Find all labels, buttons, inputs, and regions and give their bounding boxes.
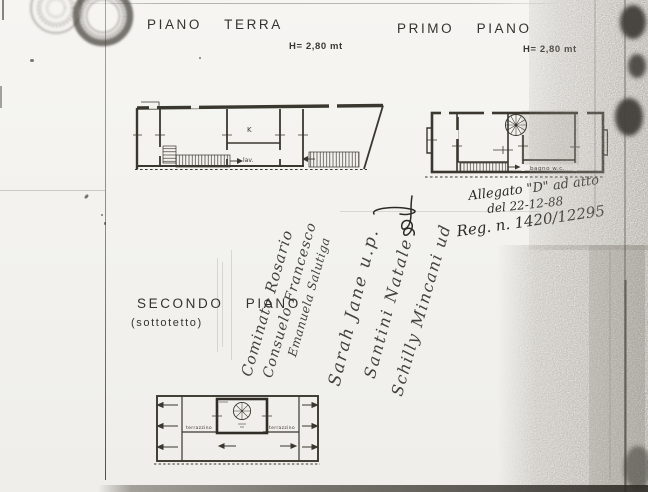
scanned-document-page: PIANO TERRA H= 2,80 mt PRIMO PIANO H= 2,… bbox=[0, 0, 648, 492]
stamp-dark-circle-icon bbox=[76, 0, 130, 43]
terrace-right-label: terrazzino bbox=[269, 425, 295, 431]
ink-speck bbox=[84, 194, 90, 200]
staircase-left bbox=[163, 146, 243, 167]
laundry-label: lav. bbox=[243, 157, 253, 164]
terrace-left-label: terrazzino bbox=[186, 425, 212, 431]
roof-slope-arrows-right bbox=[302, 403, 318, 450]
page-top-edge-line bbox=[88, 3, 566, 4]
attic-stair-room bbox=[217, 399, 267, 433]
piano-terra-title: PIANO TERRA bbox=[147, 17, 283, 32]
left-edge-mark bbox=[2, 0, 4, 20]
page-bottom-edge-shadow bbox=[98, 485, 648, 492]
horizontal-crease bbox=[0, 190, 105, 191]
left-edge-mark bbox=[0, 86, 2, 108]
piano-terra-height: H= 2,80 mt bbox=[289, 41, 343, 52]
ink-speck bbox=[101, 214, 103, 216]
signature-flourish bbox=[370, 188, 434, 242]
ink-speck bbox=[104, 222, 106, 225]
secondo-piano-subtitle: (sottotetto) bbox=[131, 317, 203, 329]
scan-noise-band bbox=[498, 0, 648, 492]
secondo-piano-floor-plan: terrazzino terrazzino bbox=[152, 392, 322, 470]
inner-slope-arrows bbox=[219, 444, 296, 448]
ink-speck bbox=[199, 57, 201, 59]
staircase-right bbox=[302, 152, 359, 167]
spiral-staircase-icon bbox=[233, 402, 250, 419]
round-office-stamps bbox=[14, 0, 144, 64]
vertical-fold-line bbox=[105, 0, 106, 480]
kitchen-label: K bbox=[247, 126, 252, 134]
roof-slope-arrows-left bbox=[158, 403, 179, 450]
piano-terra-floor-plan: K lav. bbox=[133, 99, 389, 175]
